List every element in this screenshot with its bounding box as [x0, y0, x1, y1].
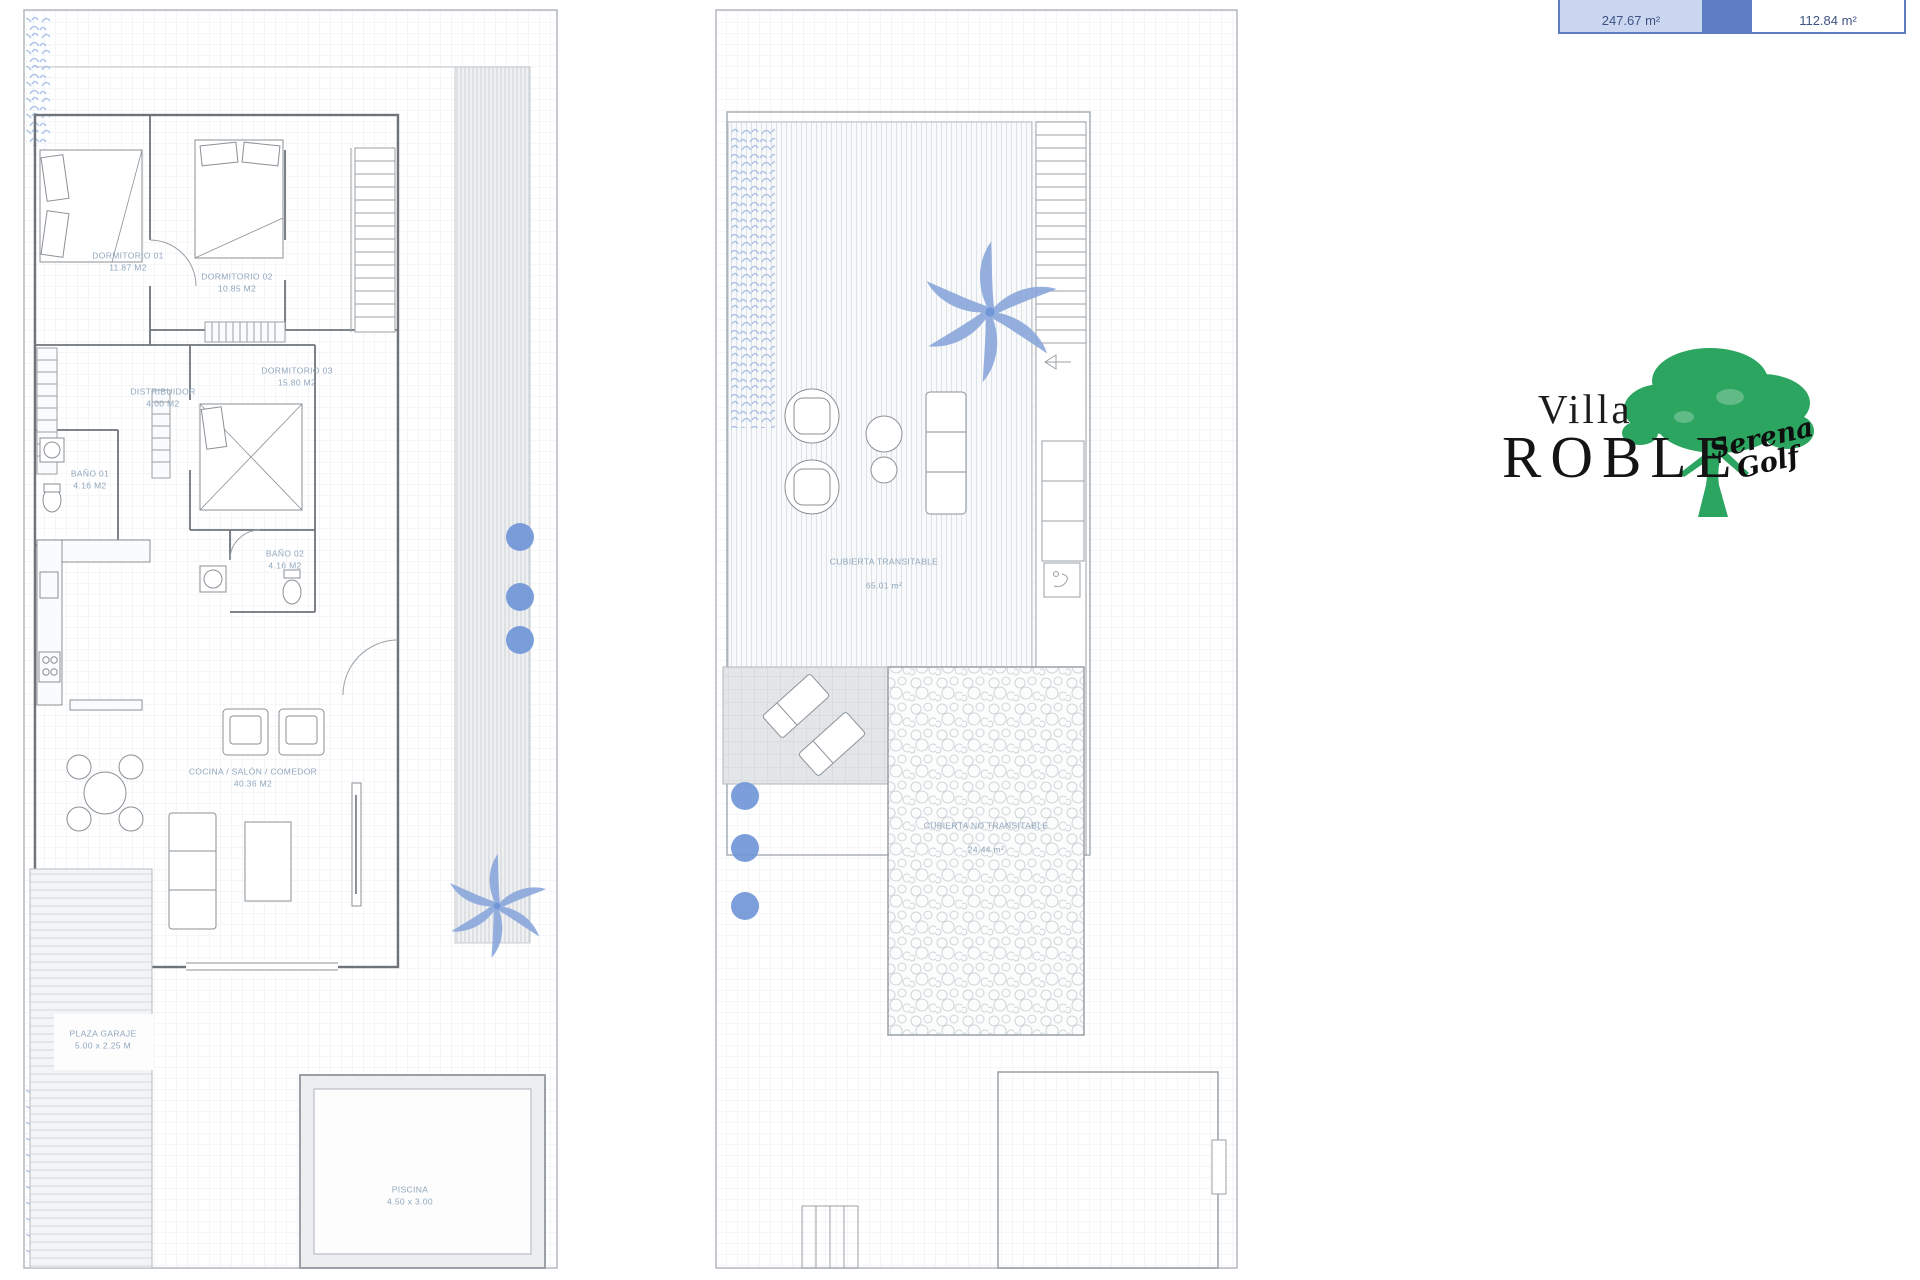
pool [300, 1075, 545, 1268]
foliage-strip [731, 128, 775, 428]
area-cell-separator [1704, 0, 1750, 32]
villa-roble-logo: Villa ROBLE Serena Golf [1500, 325, 1900, 525]
floorplan-drawing [0, 0, 1920, 1280]
roof-detail [1212, 1140, 1226, 1194]
floor1-plot [24, 10, 557, 1268]
area-cell-plot: 247.67 m² [1560, 0, 1704, 32]
label-piscina: PISCINA 4.50 x 3.00 [387, 1184, 433, 1209]
label-bano-02: BAÑO 02 4.16 M2 [266, 548, 304, 573]
area-cell-built: 112.84 m² [1750, 0, 1904, 32]
garage-area [30, 869, 154, 1268]
foliage-strip [26, 16, 50, 146]
stove-icon [39, 652, 60, 682]
logo-roble-text: ROBLE [1502, 423, 1740, 492]
shrub-dots [506, 523, 534, 654]
bed-icon [200, 404, 302, 510]
label-plaza-garaje: PLAZA GARAJE 5.00 x 2.25 M [69, 1028, 136, 1053]
label-dormitorio-01: DORMITORIO 01 11.87 M2 [92, 250, 163, 275]
label-cocina-salon-comedor: COCINA / SALÓN / COMEDOR 40.36 M2 [189, 766, 317, 791]
label-cubierta-no-transitable: CUBIERTA NO TRANSITABLE 24.44 m² [924, 820, 1049, 857]
label-dormitorio-03: DORMITORIO 03 15.80 M2 [261, 365, 332, 390]
patio-door [186, 960, 338, 974]
blueprint-canvas: DORMITORIO 01 11.87 M2 DORMITORIO 02 10.… [0, 0, 1920, 1280]
label-cubierta-transitable: CUBIERTA TRANSITABLE 65.01 m² [830, 556, 938, 593]
shrub-dots [731, 782, 759, 920]
bed-icon [40, 150, 142, 262]
label-dormitorio-02: DORMITORIO 02 10.85 M2 [201, 271, 272, 296]
label-bano-01: BAÑO 01 4.16 M2 [71, 468, 109, 493]
stairs-icon [351, 148, 395, 332]
bed-icon [195, 140, 283, 258]
area-summary-table: 247.67 m² 112.84 m² [1558, 0, 1906, 34]
floor2-plot [716, 10, 1237, 1268]
label-distribuidor: DISTRIBUIDOR 4.00 M2 [130, 386, 195, 411]
side-path [455, 67, 530, 943]
